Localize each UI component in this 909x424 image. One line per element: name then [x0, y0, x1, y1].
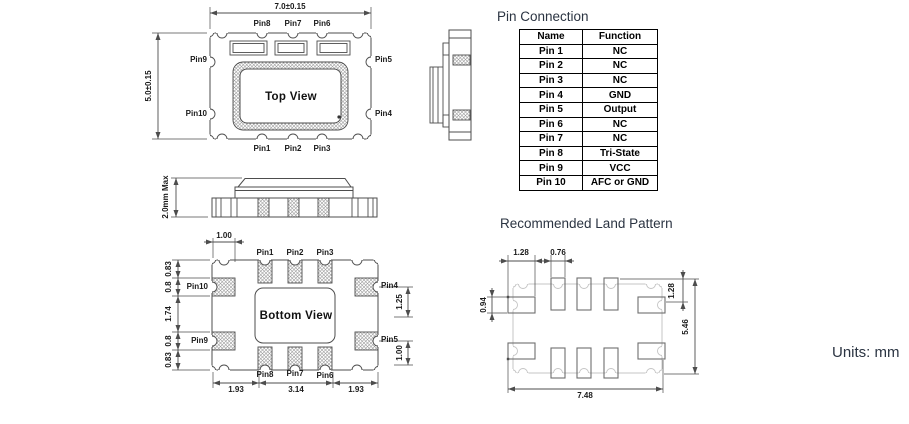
top-view-title: Top View: [265, 91, 317, 103]
pin-table-header-function: Function: [583, 30, 658, 45]
pin-label-bv-pin9: Pin9: [191, 337, 208, 345]
table-row: Pin 8Tri-State: [520, 146, 658, 161]
pin-label-bv-pin8: Pin8: [257, 371, 274, 379]
pin-label-tv-pin1: Pin1: [254, 145, 271, 153]
technical-drawing: [0, 0, 909, 424]
table-row: Pin 2NC: [520, 59, 658, 74]
pin-label-tv-pin5: Pin5: [375, 56, 392, 64]
pin-function: GND: [583, 88, 658, 103]
pin-name: Pin 2: [520, 59, 583, 74]
pin-function: NC: [583, 132, 658, 147]
table-row: Pin 4GND: [520, 88, 658, 103]
land-pattern-title: Recommended Land Pattern: [500, 216, 673, 231]
lp-pad-width-dim: 1.28: [513, 249, 529, 257]
front-view-drawing: [171, 178, 377, 217]
lp-top-offset-dim: 1.28: [668, 283, 676, 299]
bottom-view-title: Bottom View: [260, 310, 333, 322]
pin-label-tv-pin3: Pin3: [314, 145, 331, 153]
top-view-width-dim-label: 7.0±0.15: [274, 3, 305, 11]
table-row: Pin 10AFC or GND: [520, 175, 658, 190]
pin-connection-title: Pin Connection: [497, 9, 589, 24]
table-row: Pin 6NC: [520, 117, 658, 132]
front-view-height-dim-label: 2.0mm Max: [162, 175, 170, 218]
table-row: Pin 7NC: [520, 132, 658, 147]
pin-label-bv-pin7: Pin7: [287, 370, 304, 378]
pin-label-tv-pin8: Pin8: [254, 20, 271, 28]
pin-label-bv-pin10: Pin10: [187, 283, 208, 291]
top-view-height-dim-label: 5.0±0.15: [145, 70, 153, 101]
pin-name: Pin 10: [520, 175, 583, 190]
pin-label-bv-pin4: Pin4: [381, 282, 398, 290]
pin-label-tv-pin2: Pin2: [285, 145, 302, 153]
side-view-drawing: [430, 30, 471, 140]
bv-left-dim-3: 0.8: [165, 335, 173, 346]
package-dimensions-page: 7.0±0.15 5.0±0.15 Pin8 Pin7 Pin6 Pin9 Pi…: [0, 0, 909, 424]
bv-left-dim-2: 1.74: [165, 306, 173, 322]
pin-name: Pin 9: [520, 161, 583, 176]
pin-function: NC: [583, 73, 658, 88]
pin-name: Pin 7: [520, 132, 583, 147]
pin-name: Pin 4: [520, 88, 583, 103]
bv-left-dim-4: 0.83: [165, 352, 173, 368]
lp-small-pad-width-dim: 0.76: [550, 249, 566, 257]
lp-pad-height-dim: 0.94: [480, 297, 488, 313]
bv-bottom-dim-1: 3.14: [288, 386, 304, 394]
lp-overall-width-dim: 7.48: [577, 392, 593, 400]
pin-label-bv-pin5: Pin5: [381, 336, 398, 344]
pin-label-bv-pin6: Pin6: [317, 372, 334, 380]
pin-label-bv-pin1: Pin1: [257, 249, 274, 257]
bv-right-dim-0: 1.25: [396, 294, 404, 310]
pin-function: NC: [583, 117, 658, 132]
land-pattern-drawing: [487, 255, 699, 393]
table-row: Pin 5Output: [520, 102, 658, 117]
bv-bottom-dim-0: 1.93: [228, 386, 244, 394]
pin-function: Output: [583, 102, 658, 117]
pin-label-bv-pin3: Pin3: [317, 249, 334, 257]
pin-name: Pin 8: [520, 146, 583, 161]
pin-table-header-name: Name: [520, 30, 583, 45]
pin-name: Pin 1: [520, 44, 583, 59]
pin-name: Pin 5: [520, 102, 583, 117]
bv-left-dim-0: 0.83: [165, 261, 173, 277]
pin-label-tv-pin7: Pin7: [285, 20, 302, 28]
pin-label-tv-pin4: Pin4: [375, 110, 392, 118]
pin-label-tv-pin10: Pin10: [186, 110, 207, 118]
table-row: Pin 9VCC: [520, 161, 658, 176]
bv-bottom-dim-2: 1.93: [348, 386, 364, 394]
pin-function: VCC: [583, 161, 658, 176]
units-label: Units: mm: [832, 344, 900, 361]
lp-overall-height-dim: 5.46: [682, 319, 690, 335]
pin-label-tv-pin9: Pin9: [190, 56, 207, 64]
pin-label-bv-pin2: Pin2: [287, 249, 304, 257]
pin-function: Tri-State: [583, 146, 658, 161]
pin-function: NC: [583, 59, 658, 74]
table-row: Pin 3NC: [520, 73, 658, 88]
bv-left-dim-1: 0.8: [165, 281, 173, 292]
pin-label-tv-pin6: Pin6: [314, 20, 331, 28]
bv-right-dim-1: 1.00: [396, 345, 404, 361]
pin-name: Pin 3: [520, 73, 583, 88]
pin-name: Pin 6: [520, 117, 583, 132]
pin-function: NC: [583, 44, 658, 59]
pin-function: AFC or GND: [583, 175, 658, 190]
table-row: Pin 1NC: [520, 44, 658, 59]
pin-connection-table: Name Function Pin 1NC Pin 2NC Pin 3NC Pi…: [519, 29, 658, 191]
bottom-view-top-dim-label: 1.00: [216, 232, 232, 240]
